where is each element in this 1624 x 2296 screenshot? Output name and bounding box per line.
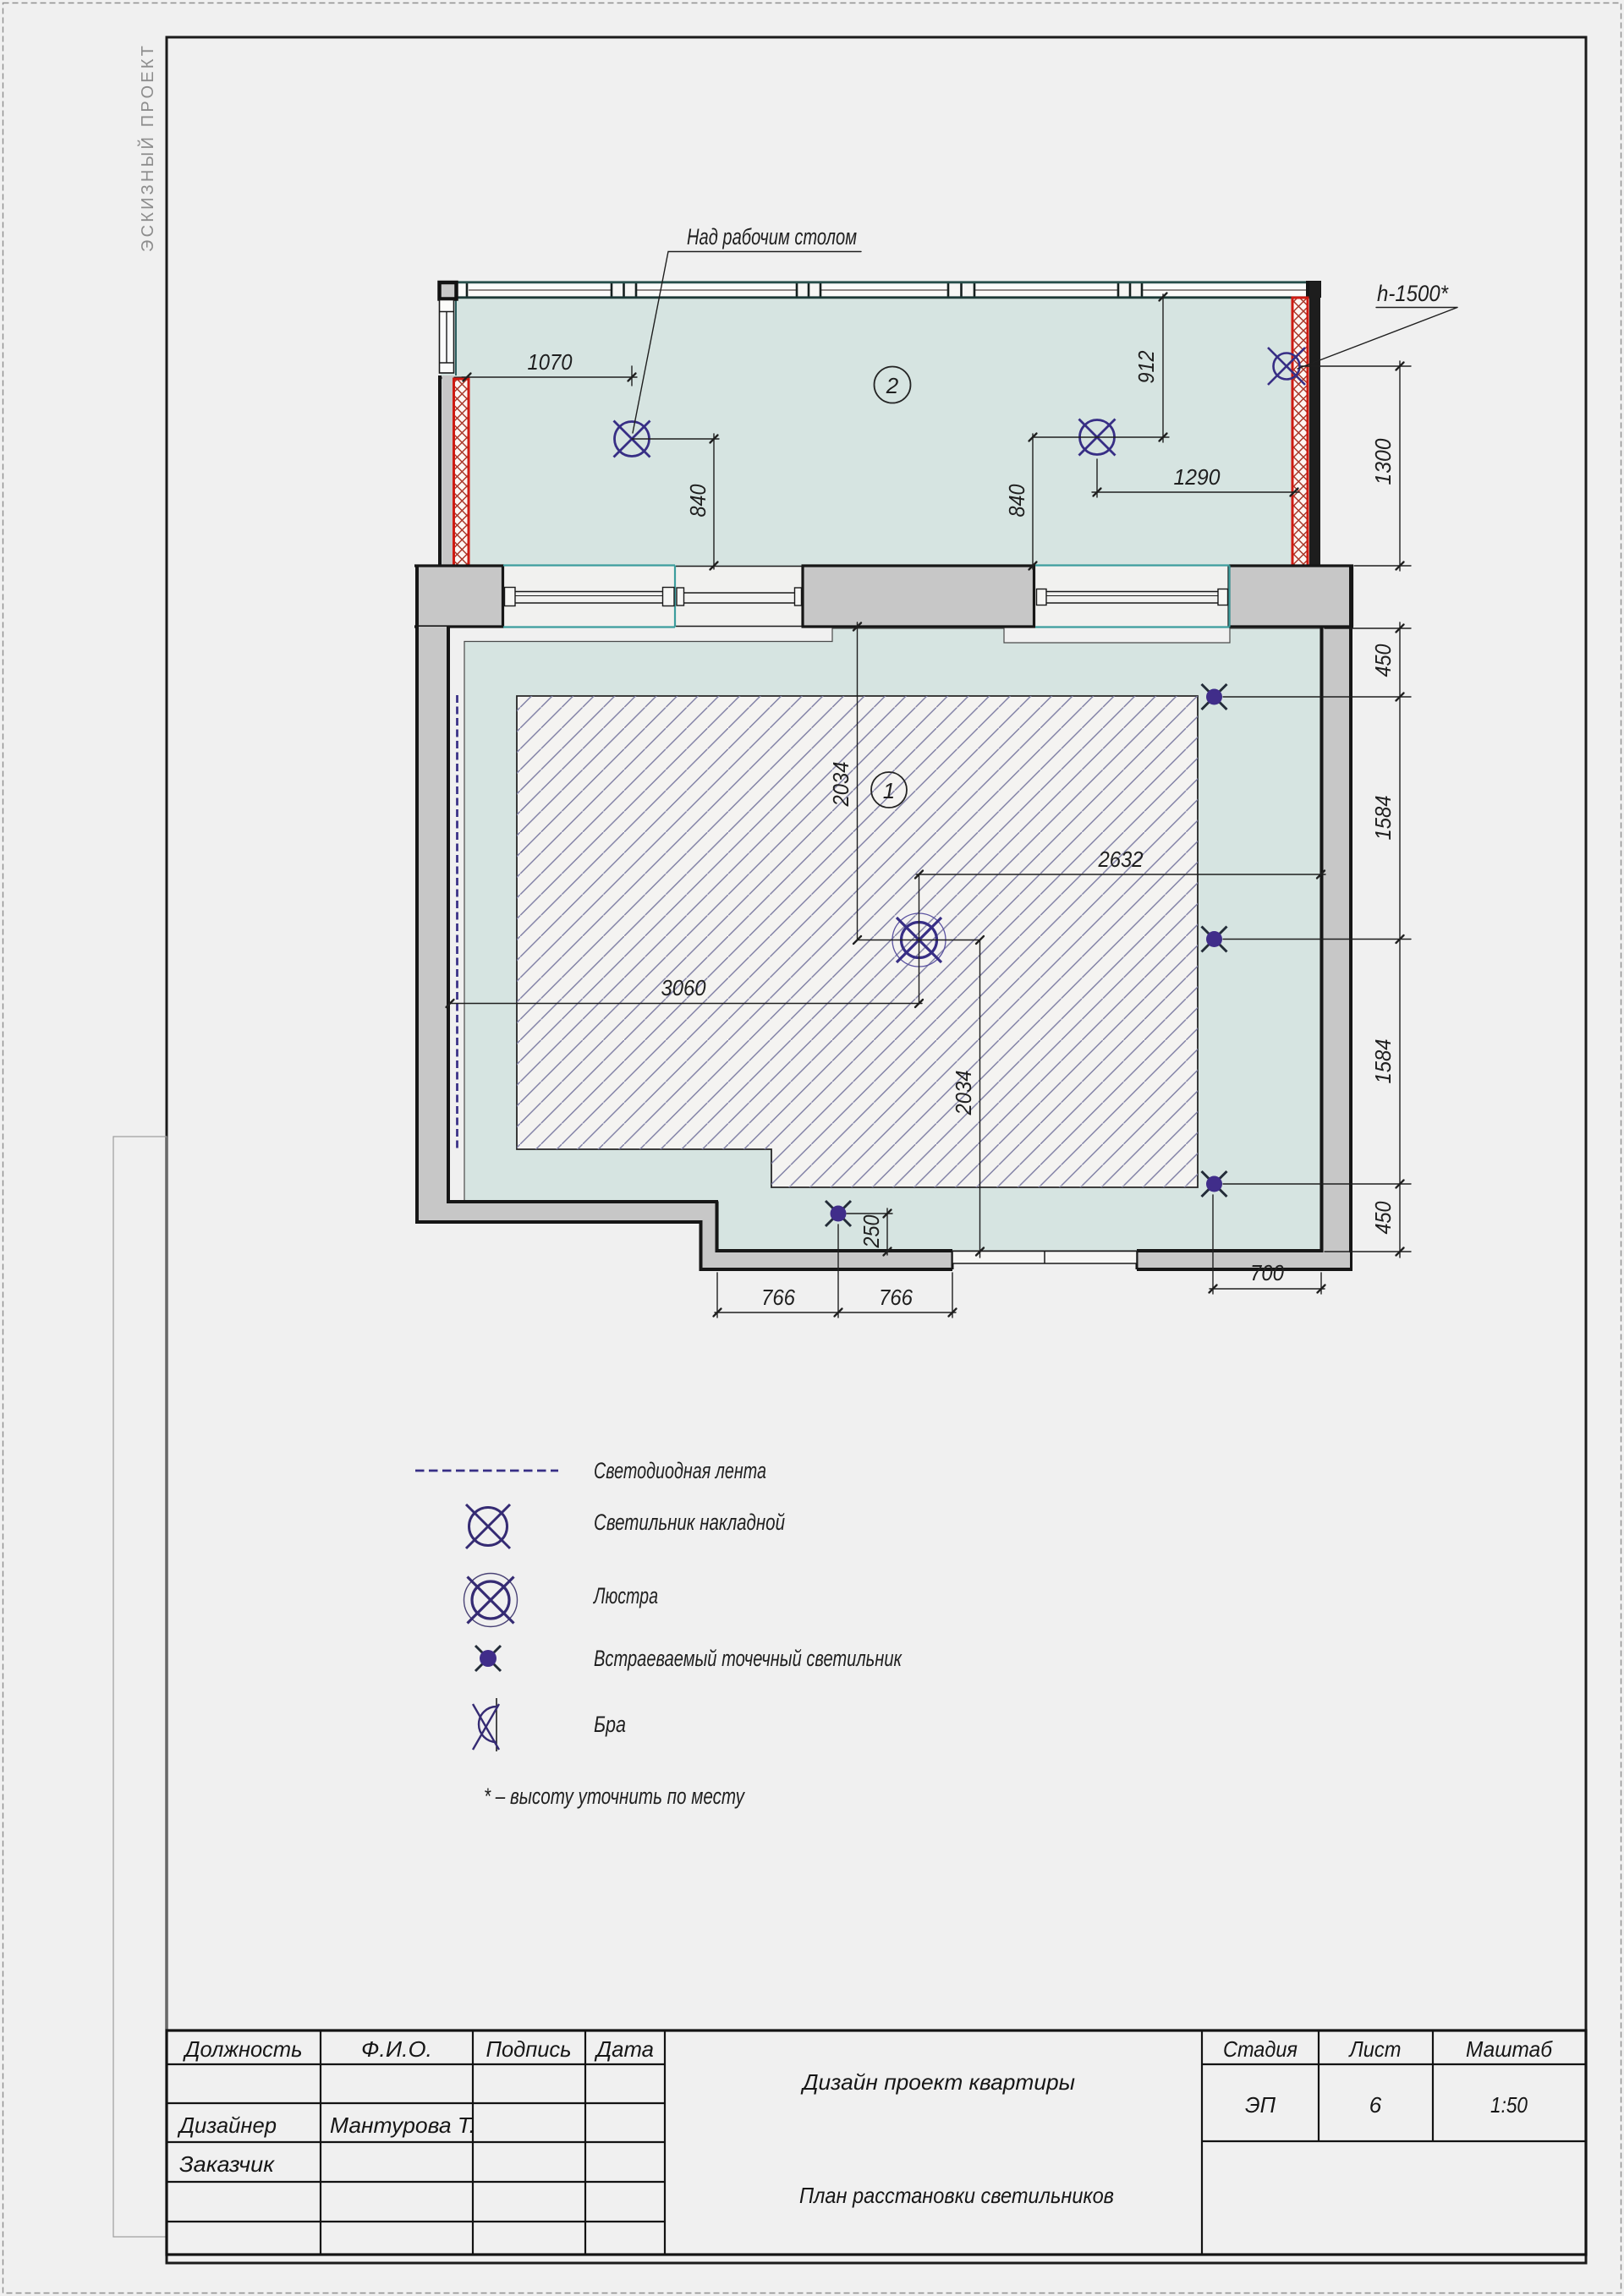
- svg-text:Подпись: Подпись: [486, 2036, 572, 2062]
- svg-text:h-1500*: h-1500*: [1377, 281, 1449, 306]
- svg-text:766: 766: [761, 1285, 795, 1310]
- svg-text:700: 700: [1250, 1260, 1284, 1285]
- svg-text:Лист: Лист: [1348, 2036, 1402, 2062]
- svg-text:* – высоту уточнить по месту: * – высоту уточнить по месту: [484, 1784, 745, 1809]
- svg-text:Светодиодная лента: Светодиодная лента: [594, 1458, 766, 1483]
- svg-text:840: 840: [685, 484, 710, 517]
- svg-text:1300: 1300: [1370, 438, 1396, 485]
- svg-text:2632: 2632: [1098, 847, 1144, 872]
- svg-text:Заказчик: Заказчик: [179, 2151, 276, 2177]
- svg-text:Встраеваемый точечный светильн: Встраеваемый точечный светильник: [594, 1646, 903, 1671]
- svg-text:Дизайн проект квартиры: Дизайн проект квартиры: [800, 2069, 1075, 2095]
- svg-text:Дизайнер: Дизайнер: [177, 2112, 277, 2138]
- svg-text:ЭП: ЭП: [1245, 2092, 1276, 2118]
- svg-text:Должность: Должность: [183, 2036, 303, 2062]
- svg-text:250: 250: [859, 1214, 884, 1248]
- svg-text:1070: 1070: [528, 349, 573, 375]
- svg-text:1290: 1290: [1174, 464, 1221, 490]
- svg-text:Ф.И.О.: Ф.И.О.: [361, 2036, 432, 2062]
- svg-text:Мантурова Т.: Мантурова Т.: [330, 2112, 475, 2138]
- svg-text:2: 2: [886, 373, 899, 398]
- svg-text:450: 450: [1370, 644, 1396, 677]
- svg-text:2034: 2034: [951, 1071, 976, 1116]
- svg-text:План расстановки светильников: План расстановки светильников: [799, 2183, 1114, 2208]
- svg-text:3060: 3060: [661, 975, 706, 1000]
- svg-text:ЭСКИЗНЫЙ ПРОЕКТ: ЭСКИЗНЫЙ ПРОЕКТ: [137, 43, 157, 252]
- svg-text:Над рабочим столом: Над рабочим столом: [687, 224, 857, 249]
- svg-text:2034: 2034: [828, 762, 853, 808]
- svg-text:Дата: Дата: [594, 2036, 654, 2062]
- svg-text:Маштаб: Маштаб: [1466, 2036, 1553, 2062]
- svg-text:840: 840: [1004, 484, 1029, 517]
- svg-text:1584: 1584: [1370, 1039, 1396, 1084]
- svg-text:Светильник накладной: Светильник накладной: [594, 1510, 785, 1535]
- svg-text:Стадия: Стадия: [1223, 2036, 1298, 2062]
- svg-text:450: 450: [1370, 1201, 1396, 1234]
- svg-text:Люстра: Люстра: [593, 1583, 658, 1608]
- svg-text:Бра: Бра: [594, 1712, 626, 1737]
- svg-text:1584: 1584: [1370, 796, 1396, 841]
- svg-text:1:50: 1:50: [1490, 2092, 1528, 2118]
- svg-text:766: 766: [879, 1285, 913, 1310]
- svg-text:1: 1: [883, 778, 895, 803]
- svg-text:6: 6: [1369, 2092, 1382, 2118]
- svg-text:912: 912: [1133, 350, 1159, 383]
